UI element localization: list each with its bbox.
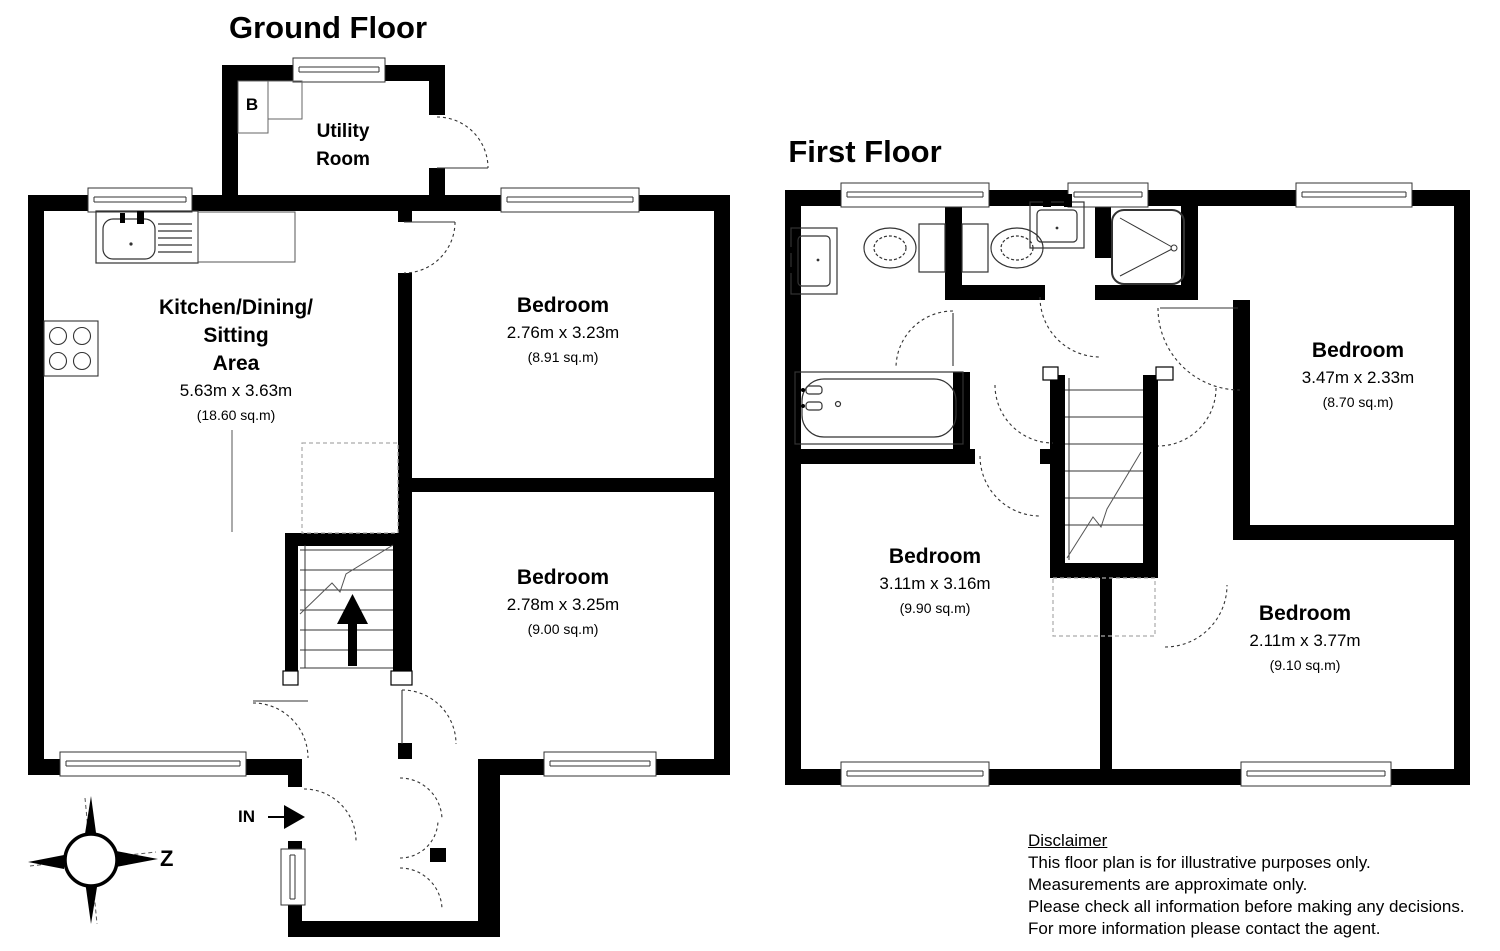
bedroom-bottom-door	[402, 690, 456, 744]
ground-floor-plan	[28, 58, 730, 937]
bedroom-br-area: (9.10 sq.m)	[1205, 654, 1405, 676]
floor-plan-drawing	[0, 0, 1500, 951]
utility-room-line1: Utility	[293, 118, 393, 146]
kitchen-bottom-window	[60, 752, 246, 776]
disclaimer-line: Please check all information before maki…	[1028, 896, 1498, 918]
kitchen-area: (18.60 sq.m)	[136, 404, 336, 426]
bedroom-bl-window	[841, 762, 989, 786]
kitchen-hall-door	[253, 701, 308, 758]
toilet-left	[864, 224, 945, 272]
bedroom-br-name: Bedroom	[1205, 600, 1405, 628]
bedroom-top-label: Bedroom 2.76m x 3.23m (8.91 sq.m)	[463, 292, 663, 368]
bathroom-window	[841, 183, 989, 207]
first-floor-windows	[841, 183, 1412, 786]
shower-room-window	[1068, 183, 1148, 207]
bedroom-top-area: (8.91 sq.m)	[463, 346, 663, 368]
understairs-cupboard-outline	[302, 443, 398, 533]
disclaimer-heading: Disclaimer	[1028, 830, 1498, 852]
landing-door-left	[995, 385, 1053, 443]
boiler-label: B	[241, 96, 263, 113]
landing-door-right	[1158, 388, 1216, 446]
bedroom-top-dims: 2.76m x 3.23m	[463, 320, 663, 346]
porch-window	[281, 849, 305, 905]
bedroom-br-dims: 2.11m x 3.77m	[1205, 628, 1405, 654]
kitchen-line3: Area	[136, 350, 336, 378]
bedroom-bottom-label: Bedroom 2.78m x 3.25m (9.00 sq.m)	[463, 564, 663, 640]
kitchen-top-window	[88, 188, 192, 212]
utility-door	[437, 117, 488, 168]
entrance-door	[304, 789, 356, 841]
first-floor-title: First Floor	[770, 136, 960, 167]
utility-room-line2: Room	[293, 146, 393, 174]
kitchen-line1: Kitchen/Dining/	[136, 294, 336, 322]
bedroom-br-label: Bedroom 2.11m x 3.77m (9.10 sq.m)	[1205, 600, 1405, 676]
compass-north-label: Z	[160, 848, 190, 870]
bedroom-bl-label: Bedroom 3.11m x 3.16m (9.90 sq.m)	[835, 543, 1035, 619]
bedroom-bl-name: Bedroom	[835, 543, 1035, 571]
bedroom-bl-dims: 3.11m x 3.16m	[835, 571, 1035, 597]
shower	[1112, 210, 1184, 284]
bedroom-tr-name: Bedroom	[1258, 337, 1458, 365]
bedroom-tr-window	[1296, 183, 1412, 207]
bathroom-door	[896, 311, 953, 368]
porch-inner-doors	[400, 778, 442, 910]
disclaimer-line: For more information please contact the …	[1028, 918, 1498, 940]
bedroom-bottom-dims: 2.78m x 3.25m	[463, 592, 663, 618]
disclaimer-line: This floor plan is for illustrative purp…	[1028, 852, 1498, 874]
kitchen-sink	[96, 211, 198, 263]
ground-floor-doors	[253, 117, 488, 910]
staircase-ground	[283, 545, 412, 685]
disclaimer-block: Disclaimer This floor plan is for illust…	[1028, 830, 1498, 940]
bedroom-bl-door	[980, 456, 1040, 516]
kitchen-label: Kitchen/Dining/ Sitting Area 5.63m x 3.6…	[136, 294, 336, 426]
bedroom-bottom-area: (9.00 sq.m)	[463, 618, 663, 640]
ground-floor-title: Ground Floor	[213, 12, 443, 43]
first-floor-plan	[785, 183, 1470, 786]
bedroom-tr-label: Bedroom 3.47m x 2.33m (8.70 sq.m)	[1258, 337, 1458, 413]
bedroom-bottom-window	[544, 752, 656, 776]
utility-room-label: Utility Room	[293, 118, 393, 174]
bedroom-top-name: Bedroom	[463, 292, 663, 320]
first-floor-walls	[785, 190, 1470, 785]
entrance-arrow	[268, 805, 305, 829]
kitchen-line2: Sitting	[136, 322, 336, 350]
utility-window	[293, 58, 385, 82]
bedroom-top-door	[404, 222, 455, 273]
bedroom-br-window	[1241, 762, 1391, 786]
bedroom-bottom-name: Bedroom	[463, 564, 663, 592]
kitchen-hob	[44, 321, 98, 376]
disclaimer-line: Measurements are approximate only.	[1028, 874, 1498, 896]
floor-plan-page: Ground Floor First Floor Utility Room B …	[0, 0, 1500, 951]
wash-basin-middle	[1030, 194, 1084, 248]
bedroom-tr-area: (8.70 sq.m)	[1258, 391, 1458, 413]
kitchen-dims: 5.63m x 3.63m	[136, 378, 336, 404]
wc-door	[1040, 297, 1100, 357]
bedroom-bl-area: (9.90 sq.m)	[835, 597, 1035, 619]
bedroom-tr-dims: 3.47m x 2.33m	[1258, 365, 1458, 391]
compass-rose	[28, 796, 158, 924]
bath	[795, 372, 963, 444]
entrance-in-label: IN	[238, 808, 268, 825]
bedroom-top-window	[501, 188, 639, 212]
